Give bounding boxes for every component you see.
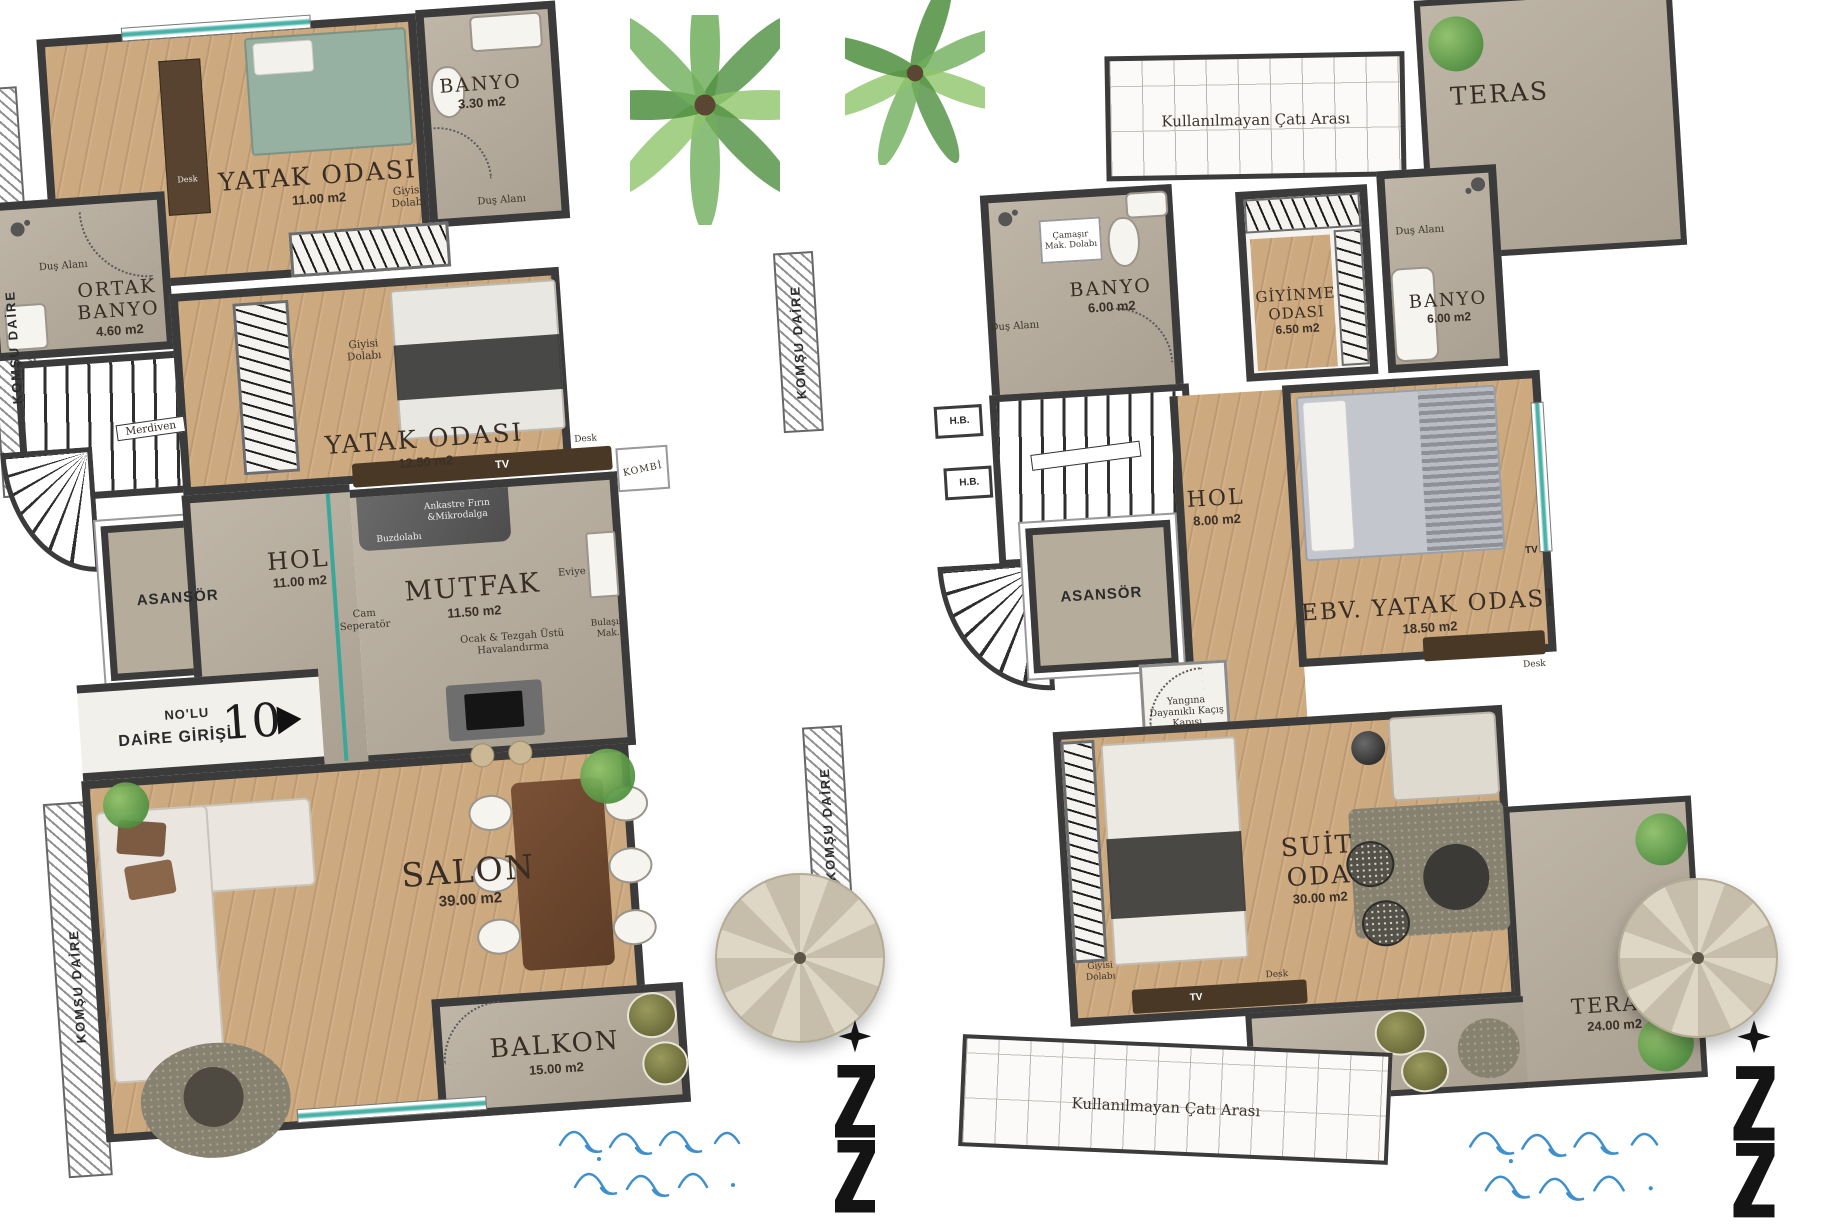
parasol-right <box>1618 878 1778 1038</box>
palm-plant-right <box>845 0 985 165</box>
entrance-number: 10 <box>220 692 282 750</box>
stairs-curved <box>0 447 100 578</box>
room-teras-top-title: TERAS <box>1449 76 1550 111</box>
glass-separator-label: Cam Seperatör <box>333 606 396 634</box>
entrance-line1: NO'LU <box>164 705 210 723</box>
closet-suit-label: Giyisi Dolabı <box>1074 960 1127 984</box>
kitchen-sink-label: Eviye <box>558 566 586 580</box>
room-ortak-banyo-title: ORTAK BANYO 4.60 m2 <box>64 274 173 341</box>
sink-banyo1-r <box>1125 190 1169 219</box>
tv-label: TV <box>495 458 510 472</box>
entrance-arrow-icon <box>277 705 303 735</box>
closet-bedroom1-label: Giyisi Dolabı <box>375 183 443 212</box>
hb-label-1: H.B. <box>949 415 970 428</box>
room-salon-title: SALON 39.00 m2 <box>400 848 538 914</box>
right-floor-plan: KOMŞU DAİRE KOMŞU DAİRE Kullanılmayan Ça… <box>754 0 1767 1230</box>
sofa-suit <box>1387 711 1500 801</box>
wardrobe-bedroom1 <box>288 221 451 277</box>
room-mutfak-title: MUTFAK 11.50 m2 <box>404 567 543 624</box>
suit-tv-label: TV <box>1189 992 1202 1005</box>
palm-plant-left <box>630 15 780 225</box>
room-hol-r-title: HOL 8.00 m2 <box>1186 485 1246 530</box>
tv-desk-label: Desk <box>574 433 597 445</box>
blanket-suit <box>1106 831 1246 919</box>
closet-bedroom2-label: Giyisi Dolabı <box>330 336 398 365</box>
throw-ebv <box>1418 387 1504 551</box>
room-banyo2-r-title: BANYO 6.00 m2 <box>1408 287 1489 327</box>
pillows-ebv <box>1302 400 1355 552</box>
blanket-bedroom2 <box>394 334 563 400</box>
room-giyinme-title: GİYİNME ODASI 6.50 m2 <box>1249 284 1344 339</box>
room-suit-title: SUİT ODA 30.00 m2 <box>1280 829 1357 908</box>
room-banyo1-title: BANYO 3.30 m2 <box>439 70 524 113</box>
dishwasher-label: Bulaşık Mak. <box>584 616 631 640</box>
kitchen-sink-unit <box>585 531 620 599</box>
suit-desk-label: Desk <box>1265 969 1288 981</box>
laundry-label: Çamaşır Mak. Dolabı <box>1041 229 1100 253</box>
pillow-bedroom1 <box>252 40 314 76</box>
wardrobe-giyinme-top <box>1244 193 1362 234</box>
room-balkon-title: BALKON 15.00 m2 <box>489 1026 622 1081</box>
floor-plan-canvas: KOMŞU DAİRE KOMŞU DAİRE Desk YATAK ODASI… <box>0 0 1827 1230</box>
room-banyo1-r-title: BANYO 6.00 m2 <box>1069 275 1154 318</box>
attic-top-label: Kullanılmayan Çatı Arası <box>1161 110 1350 131</box>
room-hol-title: HOL 11.00 m2 <box>266 544 331 592</box>
parasol-left <box>715 873 885 1043</box>
ebv-tv-label: TV <box>1525 544 1538 557</box>
waves-left <box>555 1115 785 1220</box>
sink-banyo1 <box>469 12 543 53</box>
ebv-desk-label: Desk <box>1523 659 1546 671</box>
fire-exit-label: Yangına Dayanıklı Kaçış Kapısı <box>1146 693 1228 731</box>
cooktop <box>464 690 524 730</box>
waves-right <box>1465 1115 1705 1225</box>
brand-logo-left <box>815 1020 895 1220</box>
wardrobe-bedroom2 <box>232 300 300 475</box>
desk-bedroom1-label: Desk <box>177 174 198 185</box>
hb-label-2: H.B. <box>959 476 980 489</box>
brand-logo-right <box>1712 1020 1796 1225</box>
